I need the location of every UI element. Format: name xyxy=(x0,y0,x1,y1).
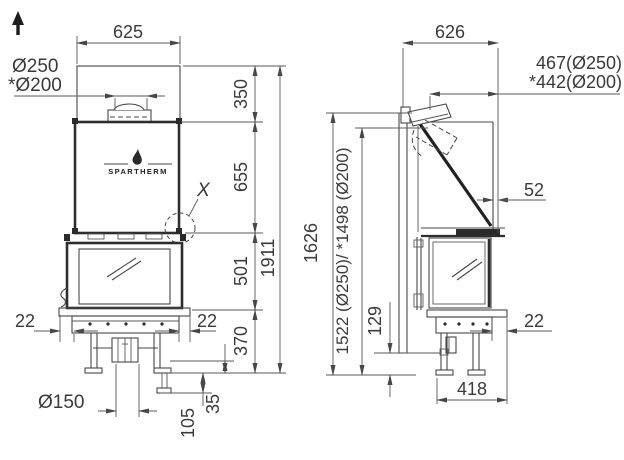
detail-label: X xyxy=(196,180,211,201)
dim-seg-door: 501 xyxy=(231,256,251,286)
air-stub xyxy=(440,337,456,355)
side-frame-bolts xyxy=(443,322,488,325)
side-legs xyxy=(436,333,485,375)
dim-depth: 626 xyxy=(435,22,465,42)
dim-offset-front: 22 xyxy=(524,311,544,331)
dim-offset-left: 22 xyxy=(15,311,35,331)
dim-floor-flue: Ø150 xyxy=(38,392,84,413)
dim-adjust-small: 35 xyxy=(203,394,223,414)
side-dimensions: 626 467(Ø250) *442(Ø200) 52 1626 1522 (Ø… xyxy=(301,22,622,404)
flue-collar-front xyxy=(108,104,151,122)
dim-flue-setback-small: *442(Ø200) xyxy=(529,72,622,92)
dim-height-shield: 1626 xyxy=(301,223,321,263)
dim-base-depth: 418 xyxy=(457,379,487,399)
pedestal xyxy=(112,338,138,362)
side-base-plate xyxy=(427,310,507,317)
door-outline xyxy=(67,243,182,308)
front-dimensions: 625 Ø250 *Ø200 350 655 501 370 xyxy=(8,22,286,438)
side-view: 626 467(Ø250) *442(Ø200) 52 1626 1522 (Ø… xyxy=(301,22,622,404)
dim-height-flue: 1522 (Ø250)/ *1498 (Ø200) xyxy=(333,148,352,355)
back-panel xyxy=(399,113,407,353)
dim-offset-right: 22 xyxy=(197,311,217,331)
flame-icon xyxy=(133,149,142,165)
flue-collar-side xyxy=(401,104,457,157)
side-glass xyxy=(433,242,485,304)
tilted-glass xyxy=(420,124,491,226)
dim-total-height: 1911 xyxy=(258,239,278,278)
drawing-sheet: SPARTHERM xyxy=(0,0,624,460)
dim-seg-hood: 350 xyxy=(231,79,251,109)
legs xyxy=(85,333,171,393)
front-view: SPARTHERM xyxy=(8,22,286,438)
firebox-outline xyxy=(75,122,179,233)
dim-base-clearance: 129 xyxy=(365,306,385,336)
spartherm-logo: SPARTHERM xyxy=(104,149,172,176)
dim-front-gap: 52 xyxy=(524,180,544,200)
orientation-up-arrow-icon xyxy=(12,11,24,35)
brand-wordmark: SPARTHERM xyxy=(108,167,168,176)
fireplace-dimension-drawing: SPARTHERM xyxy=(0,0,624,460)
dim-adjust-large: 105 xyxy=(178,408,198,438)
convection-channel xyxy=(414,237,423,310)
dim-seg-base: 370 xyxy=(231,326,251,356)
extended-foot xyxy=(157,388,171,393)
dim-flue-small: *Ø200 xyxy=(8,75,62,96)
glass-pane xyxy=(79,249,170,304)
dim-flue-large: Ø250 xyxy=(12,56,58,77)
side-door xyxy=(429,238,491,308)
frame-bolts xyxy=(88,322,163,325)
vent-slots xyxy=(64,234,186,241)
dim-flue-setback-large: 467(Ø250) xyxy=(536,53,622,73)
dim-seg-firebox: 655 xyxy=(231,162,251,192)
dim-front-width: 625 xyxy=(113,22,143,42)
